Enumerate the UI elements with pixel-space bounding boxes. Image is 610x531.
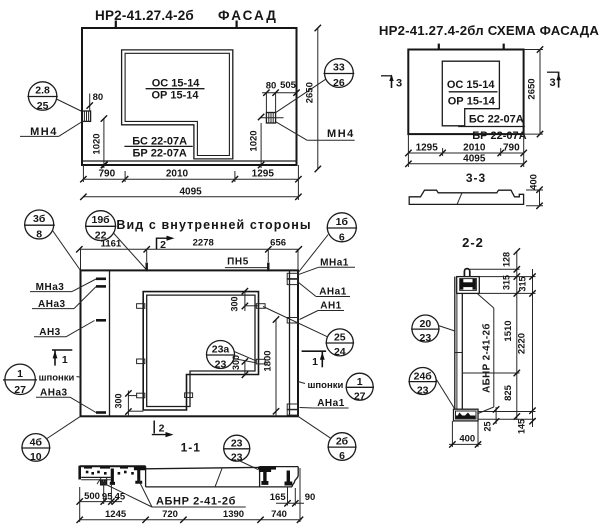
svg-text:165: 165	[270, 492, 287, 503]
svg-text:45: 45	[115, 491, 126, 502]
svg-text:505: 505	[280, 80, 297, 91]
svg-text:23: 23	[215, 359, 227, 371]
svg-text:790: 790	[98, 169, 115, 180]
svg-text:1020: 1020	[92, 133, 103, 154]
svg-text:10: 10	[30, 451, 42, 463]
svg-text:80: 80	[266, 80, 277, 91]
svg-text:500: 500	[84, 491, 100, 502]
svg-text:19б: 19б	[92, 214, 111, 226]
svg-text:27: 27	[354, 391, 366, 403]
svg-text:БС 22-07А: БС 22-07А	[469, 114, 524, 126]
svg-text:БР 22-07А: БР 22-07А	[133, 147, 187, 159]
svg-text:1390: 1390	[223, 509, 244, 520]
svg-text:300: 300	[113, 393, 123, 408]
svg-text:2220: 2220	[517, 333, 528, 354]
svg-text:400: 400	[459, 434, 475, 445]
svg-text:АН1: АН1	[320, 300, 342, 311]
svg-text:ФАСАД: ФАСАД	[218, 8, 278, 23]
svg-text:2010: 2010	[166, 169, 189, 180]
svg-text:27: 27	[14, 384, 26, 396]
svg-text:ОС 15-14: ОС 15-14	[152, 78, 201, 90]
svg-text:шпонки: шпонки	[308, 380, 344, 391]
svg-text:1020: 1020	[249, 130, 260, 151]
svg-text:790: 790	[503, 143, 520, 154]
svg-text:АНа1: АНа1	[317, 398, 345, 409]
svg-text:4б: 4б	[30, 437, 43, 449]
svg-text:3: 3	[396, 78, 402, 90]
svg-text:3: 3	[549, 77, 555, 89]
svg-text:24: 24	[334, 346, 346, 358]
svg-text:6: 6	[339, 450, 345, 462]
svg-text:4095: 4095	[463, 154, 486, 165]
svg-text:1510: 1510	[503, 320, 514, 341]
svg-text:шпонки: шпонки	[39, 372, 75, 383]
svg-text:ОР 15-14: ОР 15-14	[151, 90, 199, 102]
svg-text:656: 656	[270, 237, 286, 248]
svg-text:БС 22-07А: БС 22-07А	[132, 136, 187, 148]
svg-text:АБНР 2-41-2б: АБНР 2-41-2б	[481, 323, 492, 393]
svg-text:2.8: 2.8	[35, 85, 50, 97]
svg-text:2б: 2б	[336, 436, 349, 448]
svg-text:23: 23	[231, 437, 243, 449]
svg-text:НР2-41.27.4-2бл СХЕМА ФАСАДА: НР2-41.27.4-2бл СХЕМА ФАСАДА	[379, 23, 600, 38]
svg-text:1-1: 1-1	[181, 441, 201, 455]
svg-text:АБНР 2-41-2б: АБНР 2-41-2б	[156, 496, 236, 508]
svg-text:БР 22-07А: БР 22-07А	[472, 130, 526, 142]
svg-text:1161: 1161	[101, 238, 122, 249]
svg-text:25: 25	[483, 421, 493, 431]
svg-text:2-2: 2-2	[462, 235, 484, 250]
svg-text:1: 1	[62, 354, 68, 366]
svg-text:3-3: 3-3	[466, 171, 486, 185]
svg-text:1: 1	[357, 376, 363, 388]
svg-text:315: 315	[502, 275, 512, 290]
svg-text:1: 1	[312, 356, 318, 368]
svg-text:26: 26	[333, 77, 345, 89]
svg-text:400: 400	[528, 174, 539, 190]
svg-text:ПН5: ПН5	[227, 257, 249, 268]
svg-text:300: 300	[230, 296, 240, 311]
svg-text:825: 825	[503, 384, 514, 401]
svg-text:2278: 2278	[193, 237, 214, 248]
svg-text:23а: 23а	[212, 344, 230, 356]
svg-text:2650: 2650	[304, 82, 315, 103]
svg-text:24б: 24б	[414, 371, 433, 383]
svg-text:2650: 2650	[526, 78, 537, 99]
svg-text:25: 25	[37, 100, 49, 112]
svg-text:ОР 15-14: ОР 15-14	[448, 95, 496, 107]
svg-text:90: 90	[305, 492, 316, 503]
svg-text:1295: 1295	[252, 169, 275, 180]
svg-text:80: 80	[93, 92, 104, 103]
svg-text:128: 128	[502, 252, 512, 267]
svg-text:МН4: МН4	[327, 128, 355, 140]
svg-text:Вид с внутренней стороны: Вид с внутренней стороны	[116, 218, 311, 232]
svg-text:МНа1: МНа1	[320, 257, 349, 268]
svg-text:1: 1	[17, 368, 23, 380]
svg-text:1295: 1295	[416, 143, 439, 154]
svg-text:АНа1: АНа1	[319, 287, 347, 298]
svg-text:20: 20	[420, 318, 432, 330]
svg-text:8: 8	[36, 229, 42, 241]
svg-text:2: 2	[160, 239, 166, 251]
svg-text:23: 23	[417, 385, 429, 397]
svg-text:720: 720	[162, 509, 178, 520]
svg-text:6: 6	[339, 232, 345, 244]
svg-text:НР2-41.27.4-2б: НР2-41.27.4-2б	[95, 8, 194, 23]
svg-text:1245: 1245	[105, 509, 127, 520]
svg-text:2010: 2010	[463, 143, 486, 154]
svg-text:ОС 15-14: ОС 15-14	[447, 79, 496, 91]
svg-text:23: 23	[420, 332, 432, 344]
svg-text:25: 25	[334, 332, 346, 344]
svg-text:315: 315	[518, 276, 528, 291]
svg-text:145: 145	[517, 419, 527, 434]
svg-text:740: 740	[271, 509, 287, 520]
svg-text:3б: 3б	[33, 213, 46, 225]
svg-text:2: 2	[159, 423, 165, 435]
svg-text:33: 33	[333, 62, 345, 74]
svg-text:1800: 1800	[263, 350, 274, 371]
svg-text:1б: 1б	[336, 216, 349, 228]
svg-text:4095: 4095	[179, 186, 202, 197]
